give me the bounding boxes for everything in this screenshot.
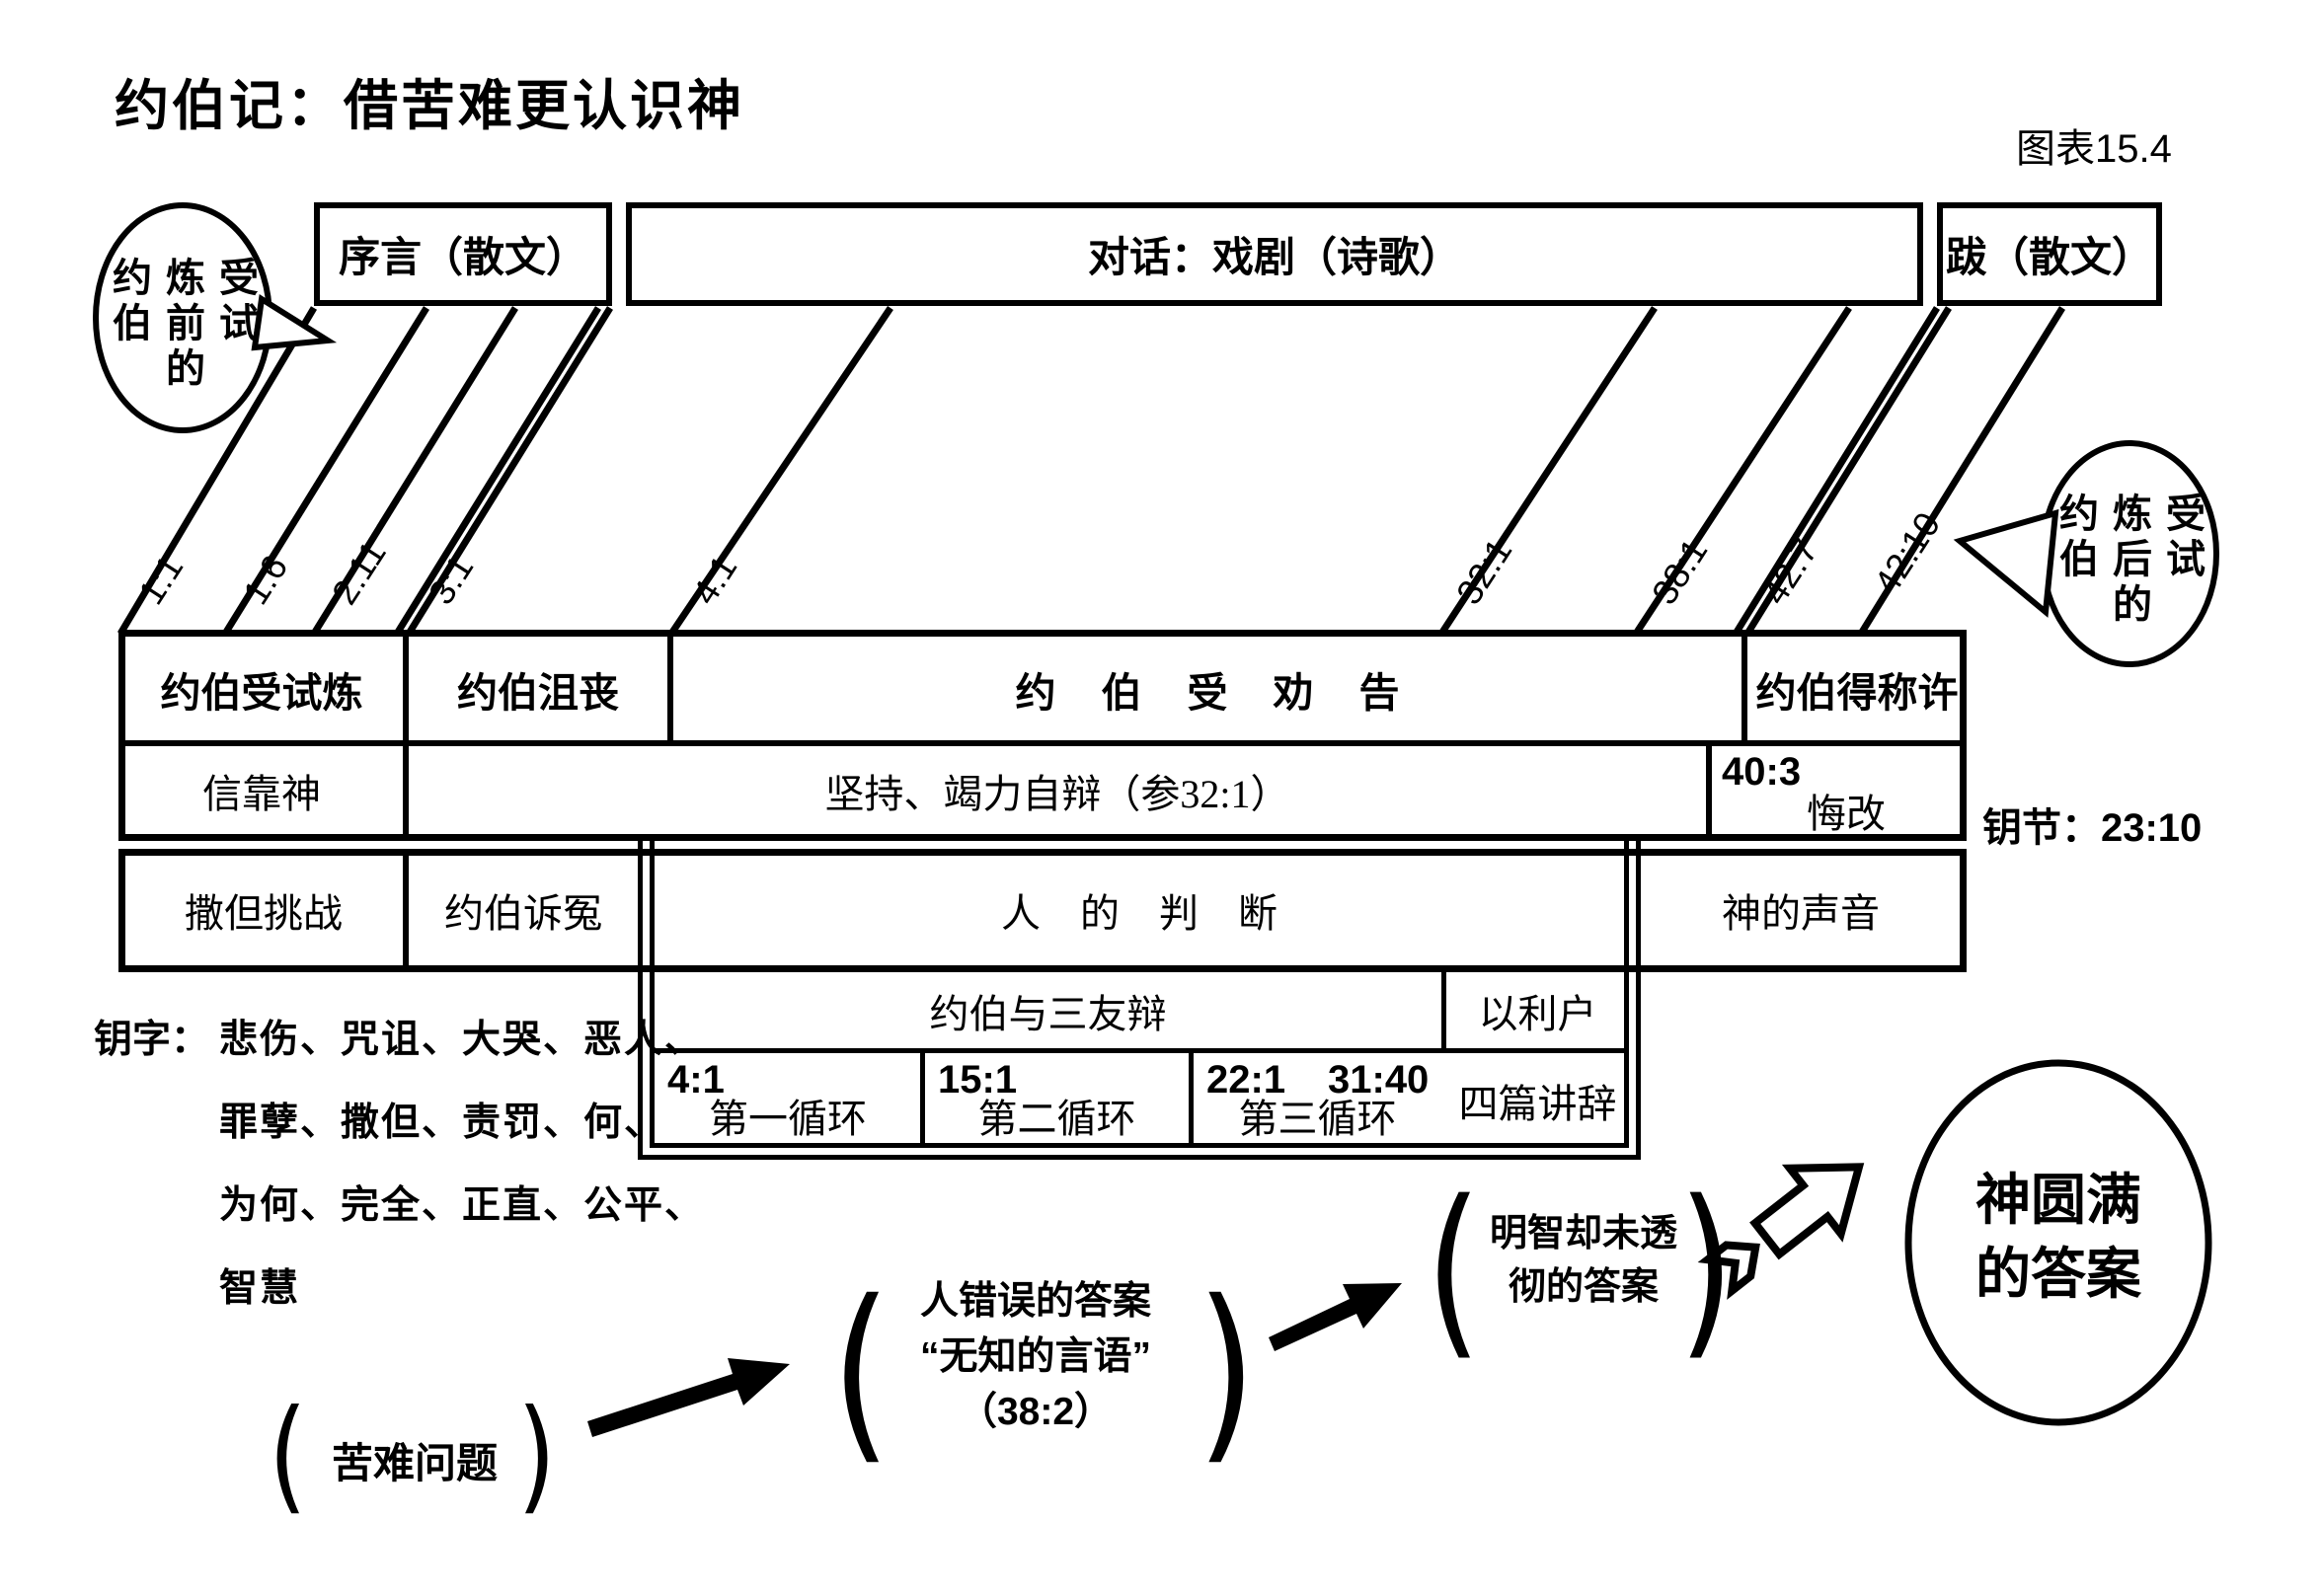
divider xyxy=(650,1048,1629,1053)
cell-job-dejected: 约伯沮丧 xyxy=(409,637,667,740)
paren-open: ( xyxy=(269,1394,307,1517)
arrow-2-icon xyxy=(1269,1283,1402,1351)
bubble-char: 伯 xyxy=(111,297,154,342)
cell-self-defense: 坚持、竭力自辩（参32:1） xyxy=(409,746,1706,835)
paren-close: ) xyxy=(1678,1177,1735,1363)
cell-trust-god: 信靠神 xyxy=(118,746,405,835)
divider xyxy=(1706,740,1712,841)
cell-satan-challenge: 撒但挑战 xyxy=(124,855,403,965)
cell-four-speeches: 四篇讲辞 xyxy=(1446,1056,1629,1145)
key-words-line: 为何、完全、正直、公平、 xyxy=(219,1175,705,1230)
key-verse: 钥节：23:10 xyxy=(1982,796,2202,853)
key-words-line: 悲伤、咒诅、大哭、恶人、 xyxy=(219,1009,705,1064)
header-epilogue: 跋（散文） xyxy=(1937,202,2162,306)
bubble-char xyxy=(217,342,261,388)
cell-elihu: 以利户 xyxy=(1446,972,1629,1048)
bubble-char: 的 xyxy=(2111,578,2154,624)
flow-step3-line1: 明智却未透 xyxy=(1467,1206,1700,1252)
cell-job-tested: 约伯受试炼 xyxy=(118,637,405,740)
arrow-1-icon xyxy=(587,1358,790,1437)
bubble-char: 的 xyxy=(164,342,207,388)
cell-job-complaint: 约伯诉冤 xyxy=(409,855,638,965)
key-words-label: 钥字： xyxy=(94,1009,209,1064)
cell-cycle-2: 第二循环 xyxy=(925,1090,1189,1141)
flow-step2-line2: “无知的言语” xyxy=(887,1330,1185,1376)
cell-cycle-3: 第三循环 xyxy=(1194,1090,1441,1141)
bubble-char xyxy=(2057,578,2101,624)
result-line2: 的答案 xyxy=(1960,1234,2157,1305)
cell-job-counseled: 约伯受劝告 xyxy=(673,637,1741,740)
hollow-arrow-icon xyxy=(1741,1134,1885,1271)
page-title: 约伯记：借苦难更认识神 xyxy=(115,61,744,140)
right-bubble-text: 约 炼 受 伯 后 试 的 xyxy=(2057,488,2207,624)
bubble-char: 试 xyxy=(2164,533,2207,578)
bubble-char xyxy=(2164,578,2207,624)
bubble-char: 伯 xyxy=(2057,533,2101,578)
job-book-chart: 约伯记：借苦难更认识神 图表15.4 序言（散文） 对话：戏剧（诗歌） 跋（散文… xyxy=(0,0,2322,1596)
cell-job-three-friends: 约伯与三友辩 xyxy=(655,972,1441,1048)
key-words-line: 罪孽、撒但、责罚、何、 xyxy=(219,1092,664,1147)
cell-mans-judgment: 人的判断 xyxy=(655,855,1624,965)
flow-step3-line2: 彻的答案 xyxy=(1467,1259,1700,1305)
left-bubble-tail xyxy=(255,299,328,347)
flow-step2-line1: 人错误的答案 xyxy=(887,1275,1185,1321)
left-bubble-text: 约 炼 受 伯 前 试 的 xyxy=(111,252,261,388)
header-prologue: 序言（散文） xyxy=(314,202,612,306)
figure-label: 图表15.4 xyxy=(2016,116,2172,174)
right-bubble-tail xyxy=(1960,513,2055,612)
cell-repent: 悔改 xyxy=(1767,786,1925,835)
cell-gods-voice: 神的声音 xyxy=(1641,855,1961,965)
flow-step2-line3: （38:2） xyxy=(887,1386,1185,1431)
flow-step1: 苦难问题 xyxy=(314,1433,515,1487)
key-words-line: 智慧 xyxy=(219,1257,300,1313)
cell-job-approved: 约伯得称许 xyxy=(1747,637,1967,740)
paren-close: ) xyxy=(517,1394,556,1517)
cell-cycle-1: 第一循环 xyxy=(655,1090,921,1141)
result-line1: 神圆满 xyxy=(1960,1160,2157,1231)
paren-open: ( xyxy=(831,1275,890,1467)
paren-close: ) xyxy=(1197,1275,1256,1467)
bubble-char xyxy=(111,342,154,388)
header-dialogue: 对话：戏剧（诗歌） xyxy=(626,202,1923,306)
bubble-char: 试 xyxy=(217,297,261,342)
